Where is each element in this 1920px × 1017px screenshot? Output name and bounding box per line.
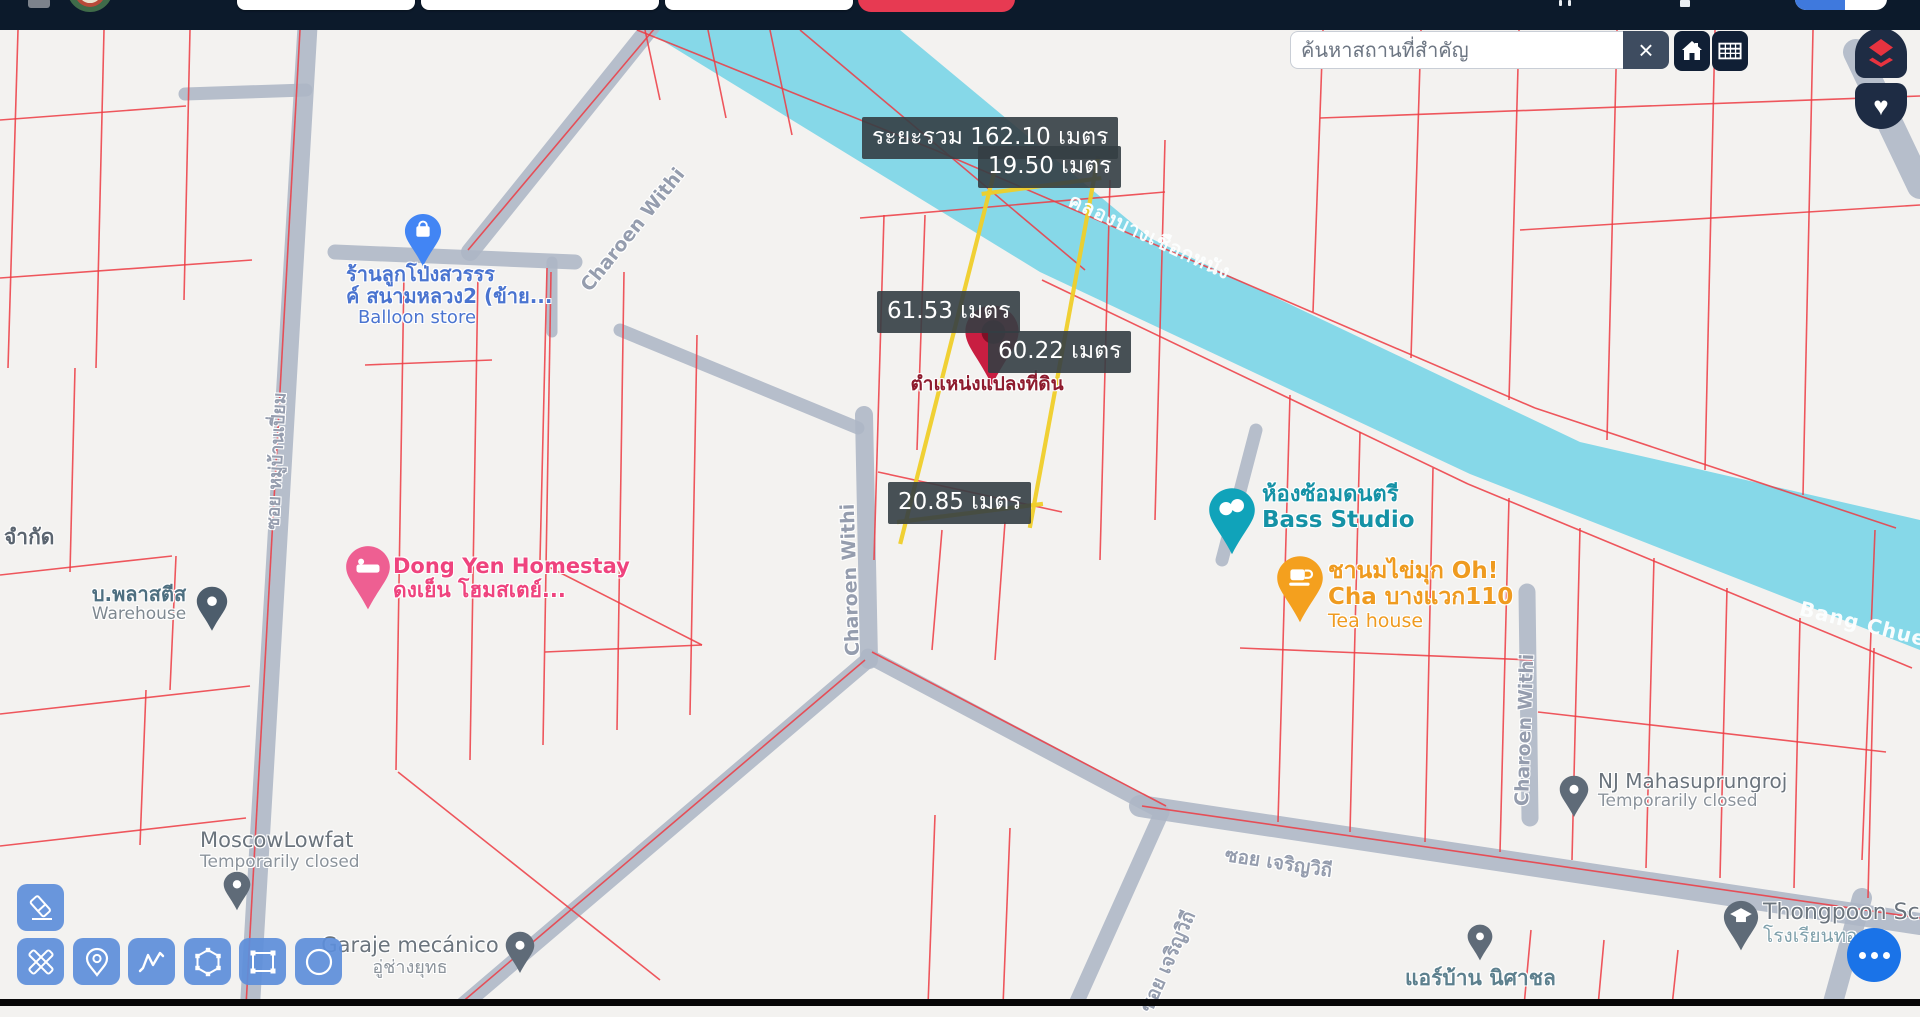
search-input[interactable] (1290, 31, 1623, 69)
poi-pin-ohcha-tea-house[interactable] (1276, 555, 1324, 625)
cadastral-line (8, 30, 18, 368)
cadastral-line (1411, 30, 1421, 358)
cadastral-line (70, 368, 75, 572)
topbar-field-1[interactable] (237, 0, 415, 10)
measure-top-side-label: 19.50 เมตร (978, 146, 1121, 188)
cadastral-line (545, 565, 702, 645)
more-options-fab[interactable] (1847, 928, 1901, 982)
poi-pin-moscowlowfat[interactable] (223, 871, 251, 912)
poi-pin-thongpoon-school[interactable] (1723, 900, 1759, 952)
cadastral-line (1240, 648, 1532, 660)
cadastral-line (872, 652, 1166, 806)
cadastral-line (1646, 558, 1654, 868)
cadastral-line (1538, 712, 1886, 752)
more-dots-icon (1859, 952, 1866, 959)
cadastral-line (0, 260, 252, 278)
department-seal-logo (67, 0, 113, 12)
road-segment (250, 18, 308, 1006)
location-pin-icon (81, 946, 113, 978)
cadastral-line (1672, 950, 1678, 1006)
cadastral-line (140, 690, 146, 845)
poi-pin-bass-studio[interactable] (1208, 487, 1256, 557)
poi-pin-plastis-warehouse[interactable] (196, 586, 228, 632)
layers-button[interactable] (1855, 28, 1907, 78)
search-clear-button[interactable]: × (1623, 31, 1669, 69)
red-layers-icon (1868, 38, 1894, 68)
cadastral-line (96, 30, 104, 368)
polyline-icon (136, 946, 168, 978)
cadastral-line (365, 360, 492, 365)
eraser-tool-button[interactable] (17, 884, 64, 931)
road-segment (1527, 592, 1530, 818)
signin-button[interactable] (858, 0, 1015, 12)
home-button[interactable] (1674, 31, 1710, 71)
cadastral-line (1320, 96, 1920, 118)
cadastral-line (1794, 618, 1800, 888)
measure-left-side-label: 61.53 เมตร (877, 291, 1020, 333)
cadastral-line (928, 815, 935, 1006)
cadastral-line (690, 335, 697, 715)
topbar-field-2[interactable] (421, 0, 659, 10)
road-segment (1075, 812, 1162, 1006)
cadastral-line (545, 645, 702, 652)
cadastral-line (0, 556, 172, 575)
favorites-button[interactable]: ♥ (1855, 83, 1907, 129)
cadastral-line (1705, 30, 1715, 470)
cadastral-line (645, 30, 660, 100)
cadastral-line (543, 272, 551, 745)
cadastral-line (1598, 940, 1604, 1006)
cadastral-line (246, 30, 300, 1006)
hamburger-menu-icon[interactable] (28, 0, 50, 8)
cadastral-line (0, 686, 250, 714)
grid-view-button[interactable] (1712, 31, 1748, 71)
table-grid-icon (1718, 39, 1742, 63)
eraser-icon (25, 892, 57, 924)
bottom-edge-bar (0, 999, 1920, 1006)
poi-pin-air-baan-nisachon[interactable] (1467, 924, 1493, 962)
home-icon (1680, 39, 1704, 63)
cadastral-line (1524, 930, 1531, 1006)
topbar-partial-icon-1[interactable] (1559, 0, 1562, 6)
place-search-bar: × (1290, 31, 1669, 69)
language-toggle-active-half (1795, 0, 1845, 10)
rectangle-tool-button[interactable] (239, 938, 286, 985)
polyline-tool-button[interactable] (128, 938, 175, 985)
language-toggle[interactable] (1795, 0, 1887, 10)
cadastral-line (468, 28, 655, 250)
cadastral-line (0, 818, 246, 846)
road-segment (185, 90, 306, 94)
cadastral-line (1520, 205, 1920, 230)
map-layer-controls: ♥ (1855, 28, 1907, 129)
cadastral-line (184, 30, 190, 300)
rectangle-icon (246, 945, 280, 979)
poi-pin-garaje-mecanico[interactable] (505, 931, 535, 975)
measure-right-side-label: 60.22 เมตร (988, 331, 1131, 373)
poi-pin-nj-mahasuprungroj[interactable] (1559, 775, 1589, 819)
map-app-stage: Charoen WithiCharoen WithiCharoen Withiซ… (0, 0, 1920, 1006)
cadastral-line (1607, 30, 1617, 440)
cadastral-line (995, 522, 1005, 660)
cadastral-line (396, 272, 404, 770)
cadastral-line (470, 272, 478, 760)
circle-tool-button[interactable] (295, 938, 342, 985)
road-segment (864, 415, 869, 660)
pin-tool-button[interactable] (73, 938, 120, 985)
poi-pin-balloon-store[interactable] (404, 213, 442, 268)
measure-draw-tool-button[interactable] (17, 938, 64, 985)
cadastral-line (1509, 30, 1519, 400)
poi-pin-dong-yen-homestay[interactable] (345, 545, 391, 612)
topbar-partial-icon-2[interactable] (1568, 0, 1571, 6)
cadastral-line (0, 106, 186, 120)
measure-bottom-side-label: 20.85 เมตร (888, 482, 1031, 524)
top-navigation-bar (0, 0, 1920, 30)
cadastral-line (1003, 828, 1010, 1006)
cadastral-line (932, 530, 942, 650)
cadastral-line (617, 272, 624, 730)
parcel-position-caption: ตำแหน่งแปลงที่ดิน (898, 369, 1076, 399)
cadastral-line (1313, 30, 1323, 312)
road-segment (335, 252, 575, 262)
cadastral-line (540, 268, 547, 560)
cadastral-line (1500, 498, 1509, 852)
road-segment (868, 656, 1162, 812)
ruler-pencil-cross-icon (25, 946, 57, 978)
cadastral-line (874, 215, 884, 560)
polygon-icon (191, 945, 225, 979)
polygon-tool-button[interactable] (184, 938, 231, 985)
cadastral-line (170, 556, 176, 690)
topbar-partial-icon-3[interactable] (1680, 0, 1690, 7)
heart-icon: ♥ (1873, 91, 1888, 121)
cadastral-line (1350, 432, 1360, 832)
circle-icon (302, 945, 336, 979)
topbar-field-3[interactable] (665, 0, 853, 10)
road-segment (620, 330, 858, 428)
